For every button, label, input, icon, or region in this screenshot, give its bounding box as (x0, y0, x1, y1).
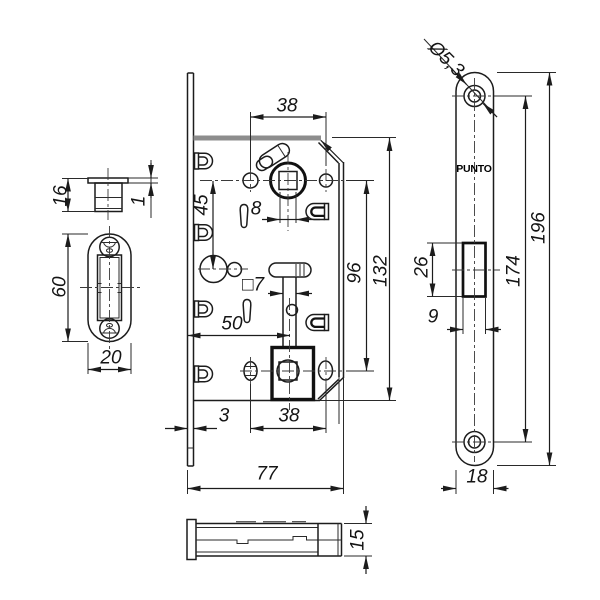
brand-logo: PUNTO (456, 163, 492, 175)
dim-body-height: 132 (372, 255, 391, 287)
dim-hole-spacing-bottom: 38 (278, 407, 299, 426)
dim-faceplate-width: 18 (466, 468, 487, 487)
dim-latch-opening-height: 26 (413, 256, 432, 277)
spring-keeper-bottom (306, 315, 329, 331)
dim-cap-height: 16 (52, 185, 71, 206)
faceplate-edge-view (188, 73, 194, 466)
dim-screw-centers: 174 (505, 255, 524, 287)
pivot-hole (228, 263, 242, 277)
dim-body-depth: 77 (256, 465, 277, 484)
lever-slot-lower (243, 300, 251, 323)
extension-lines-main (188, 112, 397, 494)
faceplate-front-view (424, 39, 556, 494)
strike-cap-view (62, 160, 158, 220)
dim-backset: 50 (221, 315, 242, 334)
bottom-view (187, 506, 372, 574)
spring-keeper-top (306, 204, 329, 220)
mounting-tabs (195, 153, 213, 382)
lock-technical-drawing: 38 8 45 □7 50 96 132 3 38 77 16 1 60 20 … (0, 0, 600, 600)
dim-square-spindle: □7 (242, 276, 264, 295)
dim-center-distance-45: 45 (193, 194, 212, 215)
chamfer-leader-arrow (321, 140, 343, 162)
dim-square-follower: 8 (251, 200, 262, 219)
lever-slot-upper (240, 205, 248, 228)
dim-plate-height: 60 (51, 276, 70, 297)
rivet-hole-right (319, 361, 333, 380)
dim-faceplate-height: 196 (530, 212, 549, 244)
dim-hole-spacing-top: 38 (276, 97, 297, 116)
latch-bolt (253, 141, 292, 173)
dim-flange-thickness: 1 (130, 196, 149, 207)
dim-centers-96: 96 (346, 262, 365, 283)
wc-spindle-block (272, 278, 314, 400)
dim-body-thickness: 15 (349, 529, 368, 550)
dim-latch-opening-width: 9 (428, 308, 439, 327)
drawing-linework (0, 0, 600, 600)
dim-faceplate-thickness: 3 (219, 407, 230, 426)
dim-plate-width: 20 (100, 349, 121, 368)
spring-slot (269, 263, 311, 277)
